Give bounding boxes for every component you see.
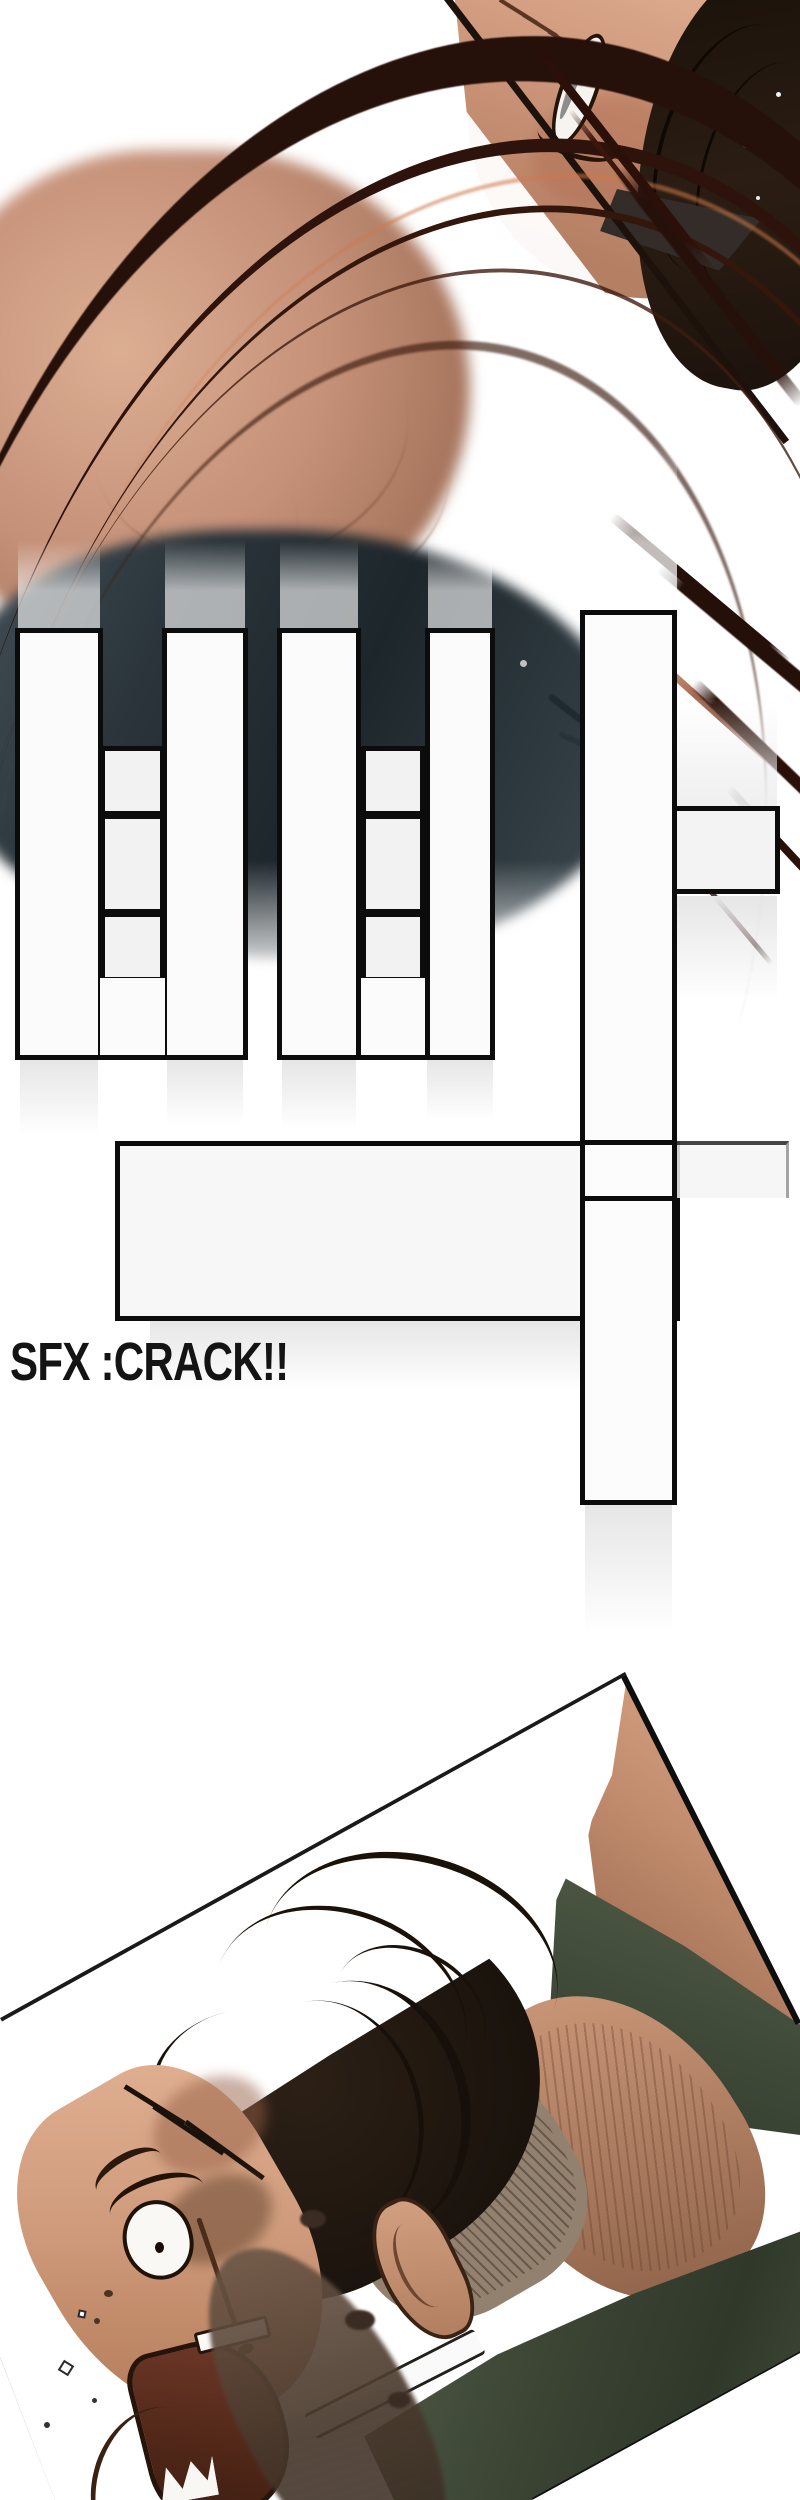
debris	[44, 2422, 50, 2428]
sfx-block	[100, 978, 165, 1060]
sfx-bar-ghost-top	[165, 540, 245, 632]
sfx-block	[361, 912, 425, 982]
sfx-arm-ghost	[675, 896, 777, 1001]
sfx-stem-divider	[580, 1196, 677, 1201]
sfx-bar-ghost-top	[280, 540, 358, 632]
sfx-arm-rect	[672, 806, 780, 894]
sfx-block	[361, 814, 425, 914]
dirt-speck	[94, 2318, 100, 2324]
debris	[77, 2309, 86, 2318]
sfx-arm-ghost	[675, 700, 777, 808]
sfx-bar-ghost-top	[18, 540, 100, 632]
pupil	[155, 2242, 164, 2253]
sfx-stem	[580, 610, 677, 1505]
comic-page: SFX :CRACK!!	[0, 0, 800, 2500]
sfx-block	[162, 628, 248, 1060]
sfx-block	[277, 628, 361, 1060]
sfx-reflection	[20, 1060, 98, 1135]
sfx-reflection	[282, 1060, 356, 1130]
sfx-block	[361, 978, 425, 1060]
panel-edge-bottom-left	[0, 2357, 56, 2500]
sfx-reflection	[427, 1060, 493, 1120]
sfx-stem-reflection	[585, 1505, 672, 1635]
sfx-block	[100, 912, 165, 982]
sfx-block	[15, 628, 103, 1060]
sfx-block	[100, 814, 165, 914]
sfx-caption: SFX :CRACK!!	[10, 1335, 288, 1389]
debris	[58, 2360, 75, 2377]
sfx-stem-ghost-top	[583, 440, 677, 612]
sfx-bar-ghost-top	[428, 540, 492, 632]
debris	[92, 2398, 97, 2403]
sfx-reflection	[167, 1060, 243, 1125]
sfx-stem-divider	[580, 1140, 677, 1145]
sfx-block	[100, 746, 165, 816]
smudge-spot	[300, 2210, 326, 2228]
sfx-band-step	[677, 1141, 789, 1198]
hair-glint	[776, 92, 781, 97]
sfx-block	[361, 746, 425, 816]
smudge-spot	[388, 2392, 410, 2408]
dirt-speck	[104, 2290, 113, 2297]
smudge-spot	[345, 2310, 375, 2330]
sfx-block	[425, 628, 495, 1060]
bottom-panel	[0, 1650, 800, 2500]
